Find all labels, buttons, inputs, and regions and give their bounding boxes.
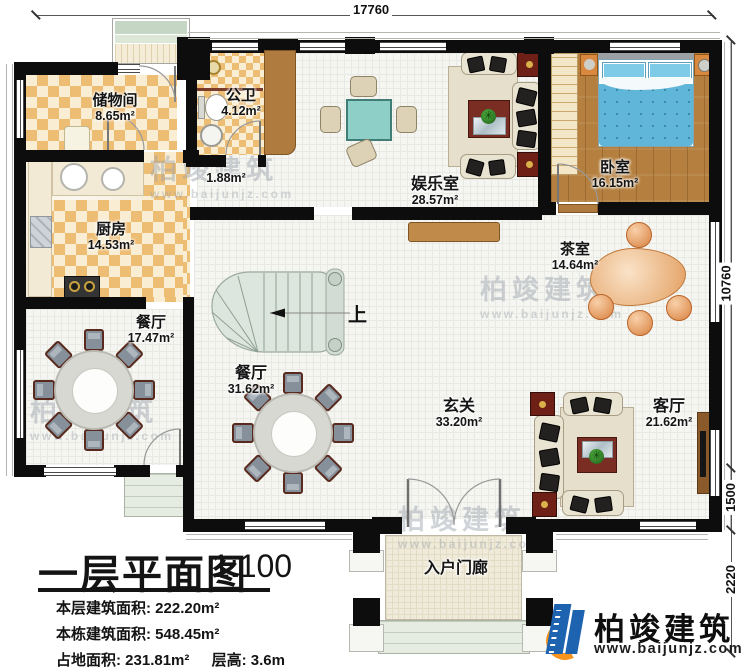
wall-pier bbox=[345, 37, 375, 54]
tea-stool bbox=[588, 294, 614, 320]
door-arc bbox=[142, 427, 182, 467]
wardrobe bbox=[551, 53, 578, 175]
living-coffee-table: ✳ bbox=[577, 437, 617, 473]
dim-label-top: 17760 bbox=[350, 2, 392, 17]
room-label-dining-large: 餐厅31.62m² bbox=[212, 365, 290, 396]
kitchen-sink-icon bbox=[30, 216, 52, 248]
wall bbox=[24, 465, 46, 477]
title-row-building-area: 本栋建筑面积: 548.45m² bbox=[56, 623, 219, 644]
window bbox=[16, 350, 24, 438]
window bbox=[610, 42, 680, 51]
chair bbox=[283, 472, 303, 494]
column-base bbox=[522, 550, 557, 572]
chair bbox=[232, 423, 254, 443]
toilet-tank bbox=[198, 96, 205, 119]
room-label-foyer: 玄关33.20m² bbox=[420, 398, 498, 429]
room-label-bathroom: 公卫4.12m² bbox=[212, 88, 270, 118]
wall-pier bbox=[177, 37, 210, 80]
dim-label-right-1: 10760 bbox=[719, 262, 734, 304]
tea-stool bbox=[627, 310, 653, 336]
door-arc bbox=[224, 119, 262, 157]
chair bbox=[332, 423, 354, 443]
room-label-lobby: 1.88m² bbox=[196, 172, 256, 186]
room-label-dining-small: 餐厅17.47m² bbox=[114, 315, 188, 345]
wall bbox=[186, 155, 226, 167]
stairs-up-label: 上 bbox=[348, 300, 367, 327]
bed bbox=[598, 59, 694, 147]
room-label-storage: 储物间8.65m² bbox=[70, 93, 160, 123]
room-label-porch: 入户门廊 bbox=[406, 560, 506, 578]
living-sofa-bottom bbox=[562, 490, 624, 516]
window bbox=[710, 430, 720, 496]
bed-blanket bbox=[599, 84, 693, 146]
window bbox=[44, 467, 116, 476]
plan-scale: 1:100 bbox=[212, 548, 292, 585]
plant-icon: ✳ bbox=[481, 109, 496, 124]
chair bbox=[84, 429, 104, 451]
hall-sideboard bbox=[408, 222, 500, 242]
burner-icon bbox=[84, 281, 95, 292]
tv-icon bbox=[700, 431, 706, 477]
room-label-kitchen: 厨房14.53m² bbox=[75, 222, 147, 252]
burner-icon bbox=[69, 281, 80, 292]
kitchen-basin bbox=[101, 167, 125, 191]
pillow bbox=[649, 63, 691, 78]
room-label-living: 客厅21.62m² bbox=[630, 398, 708, 429]
wall bbox=[598, 202, 722, 215]
wall bbox=[24, 297, 146, 309]
sill-line bbox=[556, 534, 708, 540]
ent-sofa-top bbox=[461, 52, 517, 75]
column-base bbox=[349, 550, 384, 572]
bay-window-strip bbox=[115, 21, 187, 34]
company-logo-icon bbox=[534, 602, 588, 660]
ent-coffee-table: ✳ bbox=[468, 100, 510, 138]
dim-label-right-3: 2220 bbox=[723, 562, 738, 597]
window bbox=[640, 521, 696, 530]
title-underline bbox=[38, 588, 270, 592]
living-sofa-top bbox=[563, 392, 623, 416]
sill-line bbox=[188, 32, 720, 39]
stairs bbox=[200, 266, 352, 358]
window bbox=[380, 42, 446, 51]
room-label-entertainment: 娱乐室28.57m² bbox=[395, 176, 475, 207]
porch-column bbox=[353, 528, 380, 553]
sill-line bbox=[186, 534, 352, 540]
wall bbox=[538, 40, 551, 215]
pillow bbox=[603, 63, 645, 78]
title-row-floor-area: 本层建筑面积: 222.20m² bbox=[56, 597, 219, 618]
bath-sink-icon bbox=[200, 124, 223, 147]
game-chair bbox=[320, 106, 341, 133]
company-website: www.baijunjz.com bbox=[594, 641, 743, 657]
room-label-bedroom: 卧室16.15m² bbox=[580, 160, 650, 190]
porch-steps bbox=[378, 620, 530, 654]
wall bbox=[24, 62, 118, 75]
nightstand bbox=[580, 54, 598, 76]
window bbox=[212, 42, 258, 51]
tea-stool bbox=[626, 222, 652, 248]
chair bbox=[33, 380, 55, 400]
window bbox=[300, 42, 345, 51]
chair bbox=[133, 380, 155, 400]
wall bbox=[352, 207, 542, 220]
dining-table-small bbox=[33, 329, 155, 451]
bay-window-sill bbox=[115, 44, 179, 63]
wall bbox=[538, 202, 556, 215]
kitchen-basin bbox=[60, 163, 88, 191]
storage-bin bbox=[64, 126, 90, 153]
title-row-land-area: 占地面积: 231.81m² 层高: 3.6m bbox=[56, 649, 285, 670]
living-sofa-left bbox=[534, 415, 564, 499]
game-table bbox=[346, 99, 392, 141]
chair bbox=[84, 329, 104, 351]
column-base bbox=[349, 624, 384, 652]
living-side-cabinet bbox=[532, 492, 557, 517]
room-label-tearoom: 茶室14.64m² bbox=[543, 242, 607, 272]
floor-plan: 柏竣建筑 www.baijunjz.com 柏竣建筑 www.baijunjz.… bbox=[0, 0, 750, 672]
window bbox=[245, 521, 325, 530]
side-porch-steps bbox=[124, 473, 186, 517]
tea-stool bbox=[666, 295, 692, 321]
wall bbox=[190, 207, 314, 220]
game-chair bbox=[350, 76, 377, 97]
plant-icon: ✳ bbox=[589, 449, 604, 464]
entry-double-door bbox=[402, 477, 506, 531]
living-side-cabinet bbox=[530, 392, 555, 416]
window bbox=[16, 80, 24, 138]
window bbox=[118, 64, 140, 73]
porch-column bbox=[526, 528, 553, 553]
porch-column bbox=[353, 598, 380, 626]
ent-sofa-right bbox=[512, 82, 541, 150]
stove-icon bbox=[64, 276, 100, 298]
game-chair bbox=[396, 106, 417, 133]
dim-label-right-2: 1500 bbox=[723, 480, 738, 515]
sill-line bbox=[6, 64, 13, 476]
